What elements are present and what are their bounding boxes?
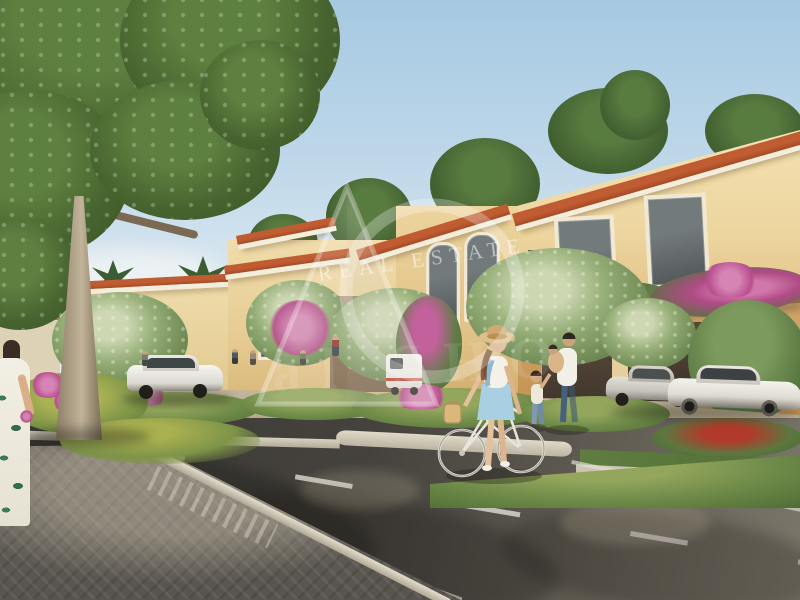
background-tree <box>600 70 670 140</box>
van-stripe <box>386 378 422 381</box>
pedestrian <box>232 349 238 364</box>
rendering-canvas: REAL ESTATE al SHO <box>0 0 800 600</box>
car-windows <box>147 358 195 368</box>
woman-left-bouquet <box>20 410 33 423</box>
cyclist-woman-with-bicycle <box>432 316 554 488</box>
car-windows <box>700 368 756 381</box>
car-windows <box>632 368 670 379</box>
red-flower-strip <box>652 418 800 458</box>
trunk-shadow <box>30 428 150 446</box>
bougainvillea-bush <box>268 300 332 356</box>
pedestrian <box>300 350 306 365</box>
pedestrian <box>250 350 256 365</box>
pedestrian-red-shirt <box>332 336 339 356</box>
van-wheel <box>410 387 418 395</box>
car-shadow <box>610 404 800 420</box>
van-window <box>390 358 403 369</box>
tree-canopy <box>200 40 320 150</box>
van-white <box>386 350 424 396</box>
light-dapple <box>300 470 420 510</box>
woman-left <box>0 340 36 536</box>
van-wheel <box>391 387 399 395</box>
bougainvillea-flowers <box>700 262 760 298</box>
pedestrian <box>142 351 148 366</box>
car-wheel <box>615 393 628 406</box>
car-shadow <box>122 392 232 406</box>
